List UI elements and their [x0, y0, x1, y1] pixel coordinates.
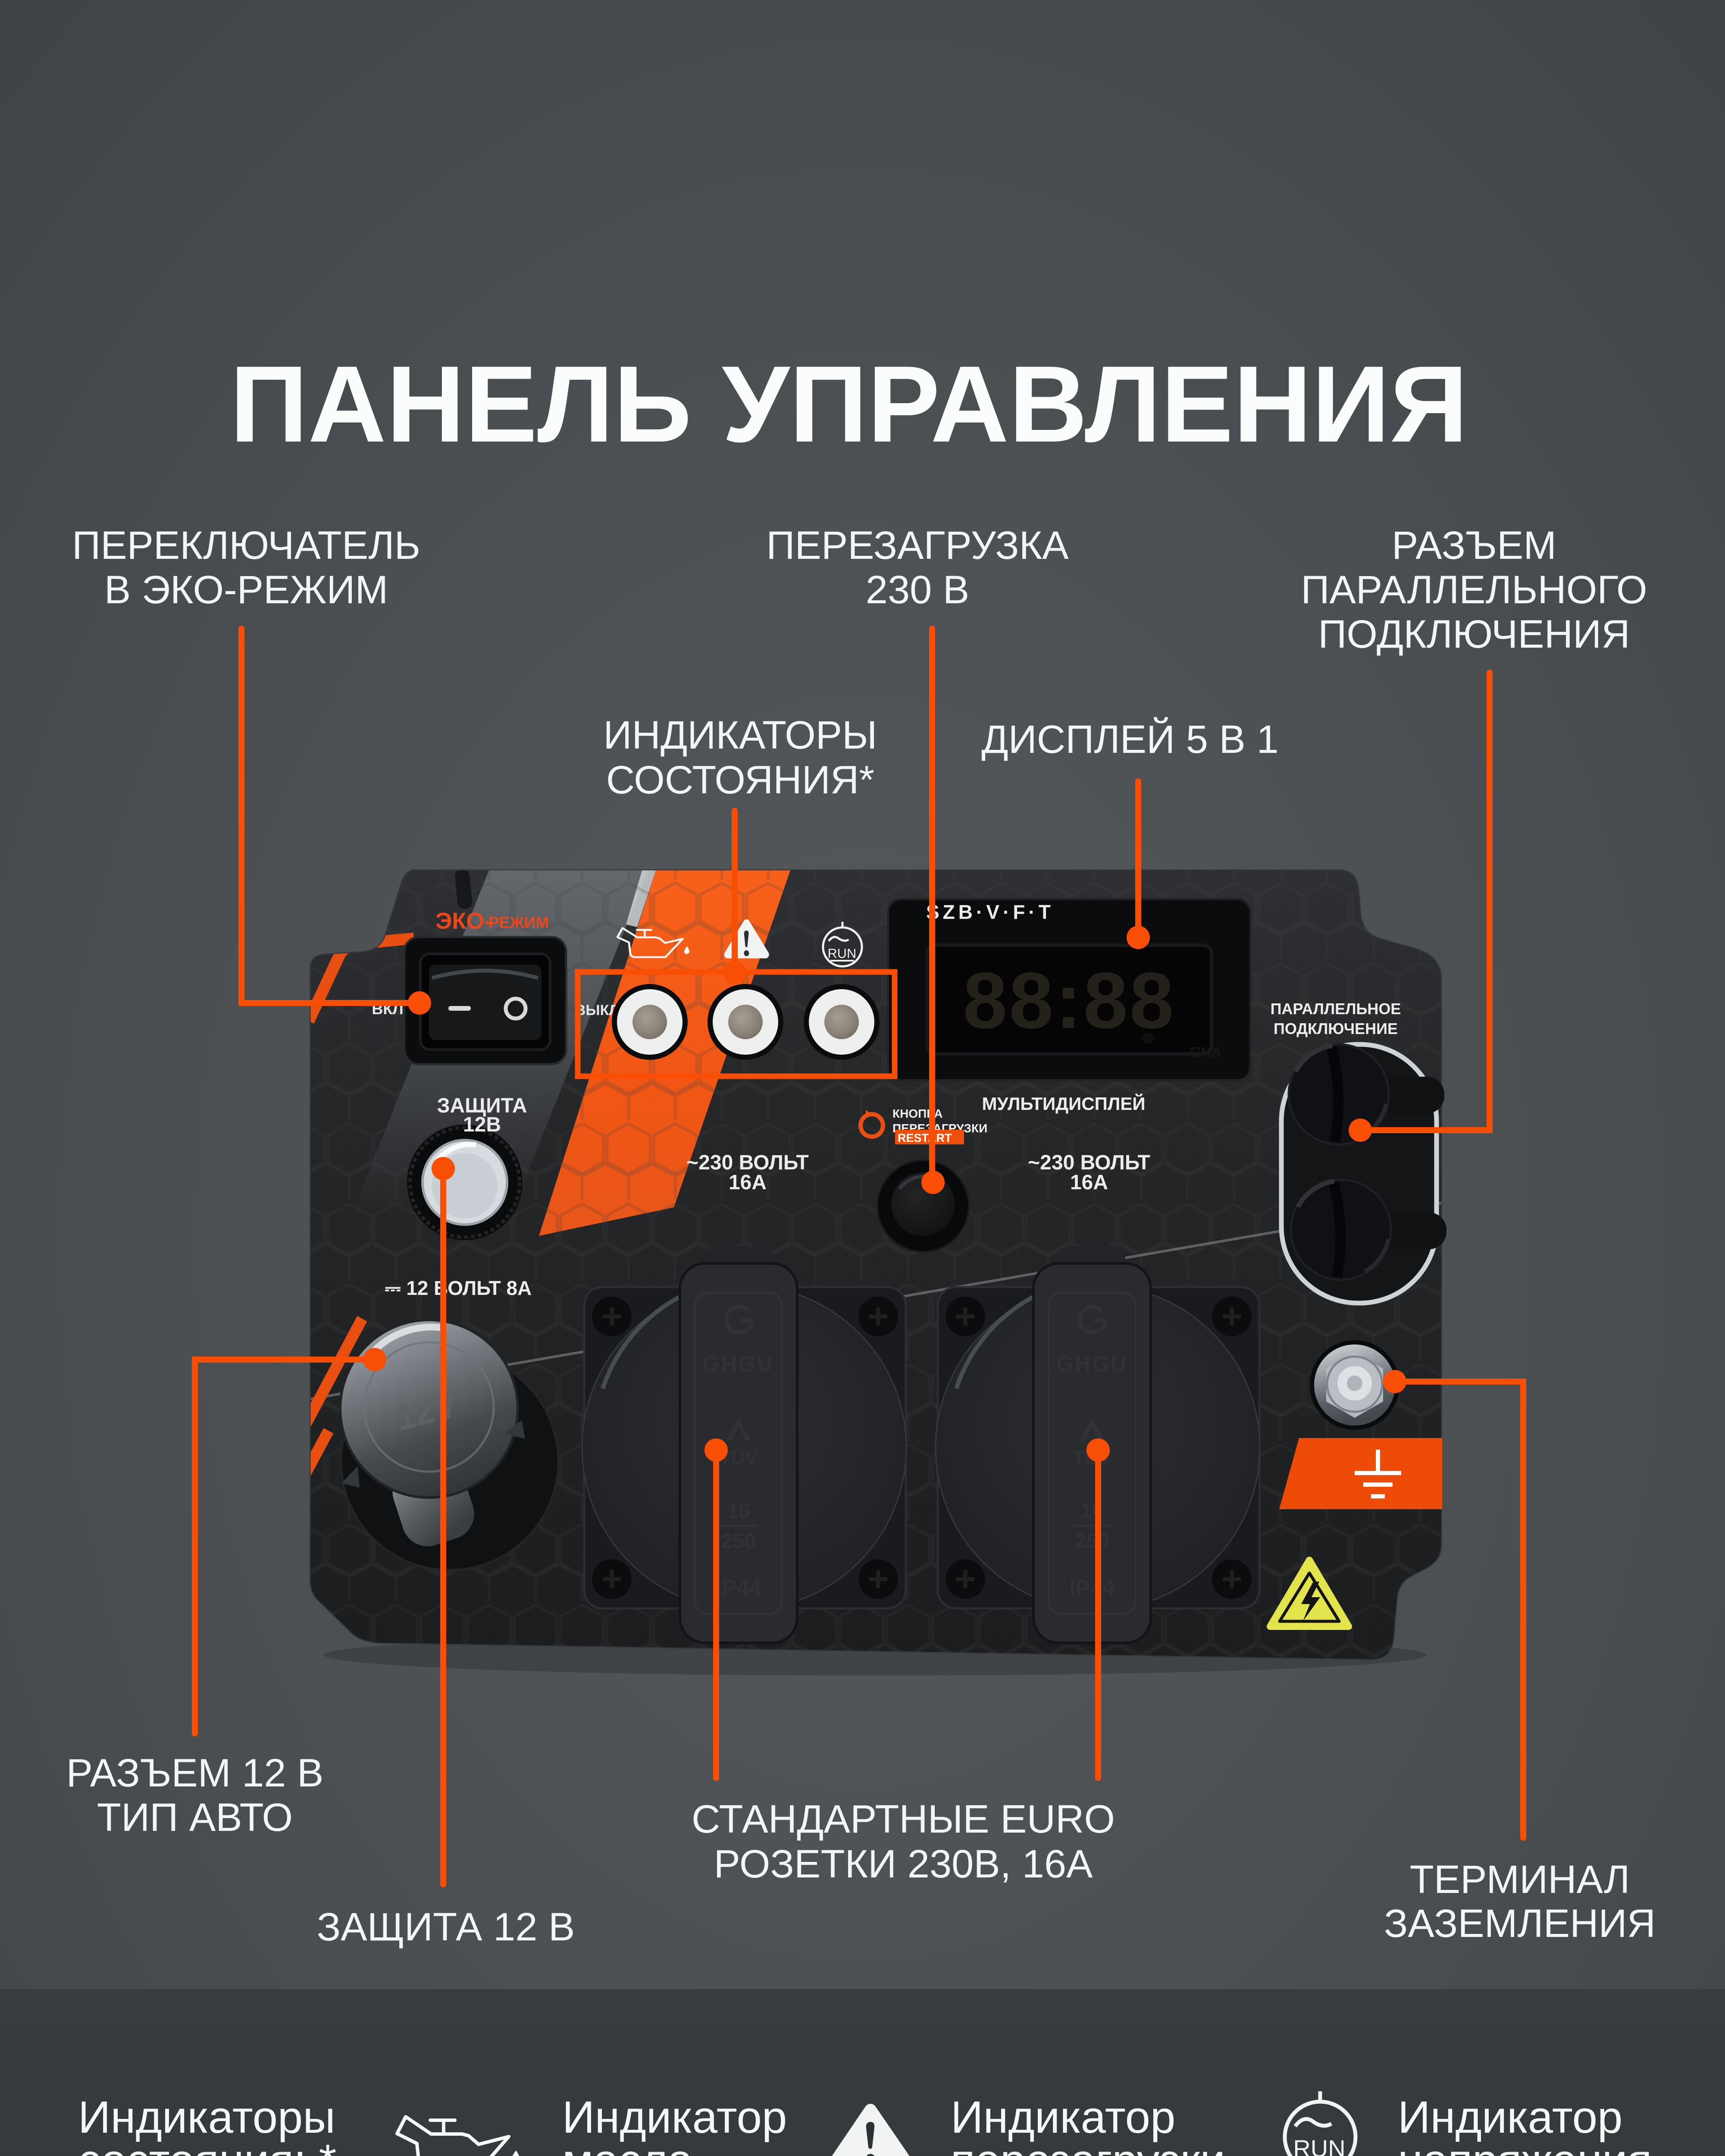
svg-text:16: 16	[727, 1500, 750, 1523]
svg-text:РОЗЕТКИ 230В, 16А: РОЗЕТКИ 230В, 16А	[714, 1842, 1093, 1886]
svg-text:СТАНДАРТНЫЕ EURO: СТАНДАРТНЫЕ EURO	[692, 1797, 1115, 1841]
svg-text:250: 250	[1075, 1530, 1109, 1553]
svg-text:ПЕРЕЗАГРУЗКА: ПЕРЕЗАГРУЗКА	[766, 523, 1069, 567]
svg-text:12В: 12В	[463, 1113, 501, 1136]
svg-text:КНОПКА: КНОПКА	[892, 1107, 943, 1120]
svg-text:CNA: CNA	[1190, 1044, 1222, 1061]
svg-text:состояния: *: состояния: *	[78, 2135, 336, 2156]
svg-text:ПОДКЛЮЧЕНИЕ: ПОДКЛЮЧЕНИЕ	[1274, 1020, 1398, 1037]
svg-text:16А: 16А	[1070, 1171, 1108, 1194]
svg-text:IP44: IP44	[1069, 1576, 1115, 1601]
svg-text:GHGU: GHGU	[703, 1352, 774, 1376]
svg-text:ТЕРМИНАЛ: ТЕРМИНАЛ	[1410, 1858, 1630, 1902]
svg-text:ПАНЕЛЬ УПРАВЛЕНИЯ: ПАНЕЛЬ УПРАВЛЕНИЯ	[230, 344, 1468, 465]
svg-text:ПАРАЛЛЕЛЬНОЕ: ПАРАЛЛЕЛЬНОЕ	[1271, 1000, 1401, 1018]
svg-text:МУЛЬТИДИСПЛЕЙ: МУЛЬТИДИСПЛЕЙ	[982, 1093, 1145, 1114]
svg-text:ЗАЩИТА 12 В: ЗАЩИТА 12 В	[317, 1905, 575, 1949]
svg-text:РАЗЪЕМ 12 В: РАЗЪЕМ 12 В	[66, 1751, 324, 1795]
svg-text:IP44: IP44	[716, 1576, 762, 1601]
svg-text:16А: 16А	[729, 1171, 767, 1194]
svg-text:GHGU: GHGU	[1056, 1352, 1128, 1376]
svg-text:250: 250	[721, 1530, 756, 1553]
svg-text:ДИСПЛЕЙ 5 В 1: ДИСПЛЕЙ 5 В 1	[981, 717, 1278, 761]
svg-text:ИНДИКАТОРЫ: ИНДИКАТОРЫ	[603, 713, 877, 757]
svg-text:ЭКО-: ЭКО-	[435, 908, 492, 934]
svg-text:СОСТОЯНИЯ*: СОСТОЯНИЯ*	[606, 758, 874, 802]
svg-text:В ЭКО-РЕЖИМ: В ЭКО-РЕЖИМ	[104, 568, 388, 612]
svg-text:⎓ 12 ВОЛЬТ 8А: ⎓ 12 ВОЛЬТ 8А	[385, 1277, 532, 1299]
svg-text:RESTART: RESTART	[898, 1131, 952, 1144]
svg-text:SZB·V·F·T: SZB·V·F·T	[926, 901, 1054, 923]
svg-text:напряжения: напряжения	[1398, 2135, 1652, 2156]
svg-text:РАЗЪЕМ: РАЗЪЕМ	[1392, 523, 1556, 567]
svg-text:ТИП АВТО: ТИП АВТО	[97, 1796, 293, 1839]
svg-text:РЕЖИМ: РЕЖИМ	[488, 914, 549, 931]
svg-text:ЗАЗЕМЛЕНИЯ: ЗАЗЕМЛЕНИЯ	[1384, 1902, 1656, 1946]
svg-text:ПЕРЕКЛЮЧАТЕЛЬ: ПЕРЕКЛЮЧАТЕЛЬ	[72, 523, 420, 567]
svg-text:ПАРАЛЛЕЛЬНОГО: ПАРАЛЛЕЛЬНОГО	[1301, 568, 1647, 612]
svg-text:88:88: 88:88	[963, 956, 1175, 1045]
svg-text:масла: масла	[562, 2135, 693, 2156]
svg-text:перезагрузки: перезагрузки	[951, 2135, 1225, 2156]
svg-text:ПОДКЛЮЧЕНИЯ: ПОДКЛЮЧЕНИЯ	[1318, 612, 1630, 656]
svg-text:230 В: 230 В	[866, 568, 969, 612]
